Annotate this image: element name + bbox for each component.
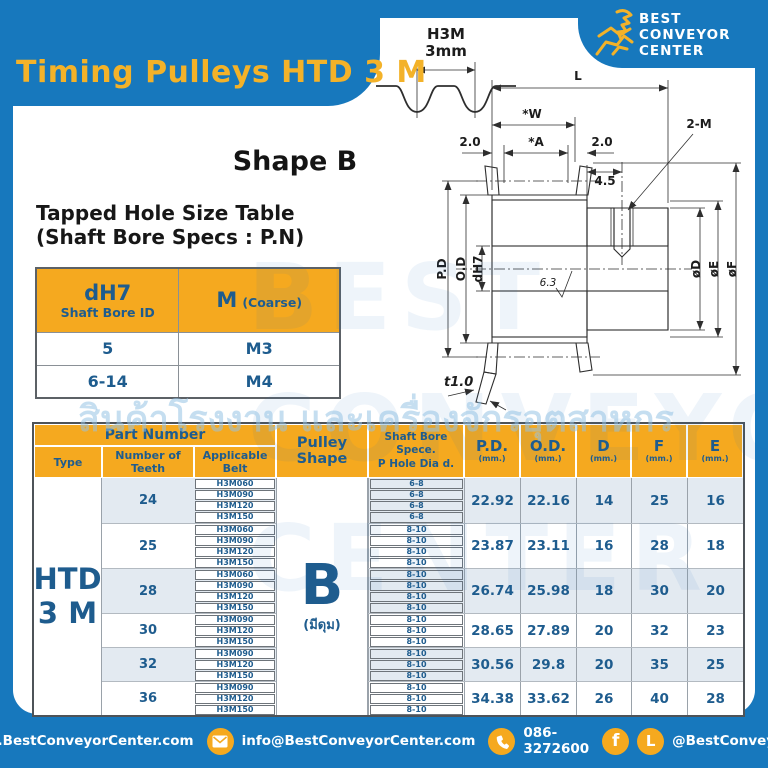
table-group: 6-86-86-86-822.9222.16142516 (368, 478, 743, 523)
tapped-cell: M4 (179, 365, 340, 398)
footer-social[interactable]: f L @BestConveyorCenter (602, 728, 768, 755)
tapped-hole-table: dH7 Shaft Bore ID M (Coarse) 5 M3 6-14 M… (35, 267, 341, 399)
tapped-col-header-bore: dH7 Shaft Bore ID (36, 268, 179, 332)
belt-cell: H3M060 (195, 479, 275, 489)
belt-cell: H3M090 (195, 536, 275, 546)
belt-stack: H3M060H3M090H3M120H3M150 (194, 569, 276, 613)
spec-table-header: Part Number Type Number of Teeth Applica… (34, 424, 743, 478)
teeth-cell: 25 (102, 524, 194, 568)
dim-L: L (574, 69, 582, 83)
teeth-cell: 24 (102, 478, 194, 523)
d-cell: 18 (576, 569, 631, 613)
page-title: Timing Pulleys HTD 3 M (16, 55, 427, 90)
header-teeth: Number of Teeth (102, 446, 194, 478)
bore-cell: 8-10 (370, 592, 463, 602)
table-group: 8-108-108-1030.5629.8203525 (368, 647, 743, 681)
belt-cell: H3M150 (195, 558, 275, 568)
header-od: O.D.(mm.) (520, 424, 576, 478)
brand-logo: BEST CONVEYOR CENTER (578, 0, 768, 68)
dim-t: t1.0 (444, 375, 473, 390)
belt-cell: H3M150 (195, 637, 275, 647)
brand-goat-icon (597, 11, 632, 54)
brand-text-line1: BEST (639, 11, 681, 27)
od-cell: 25.98 (520, 569, 576, 613)
belt-stack: H3M090H3M120H3M150 (194, 614, 276, 647)
pd-cell: 30.56 (464, 648, 520, 681)
footer-website[interactable]: www.BestConveyorCenter.com (0, 728, 194, 755)
tapped-table-heading: Tapped Hole Size Table (Shaft Bore Specs… (36, 201, 304, 249)
header-type: Type (34, 446, 102, 478)
bore-cell: 8-10 (370, 570, 463, 580)
header-d: D(mm.) (576, 424, 631, 478)
dim-tap: 2-M (686, 117, 711, 131)
bore-cell: 8-10 (370, 660, 463, 670)
bore-cell: 6-8 (370, 490, 463, 500)
bore-cell: 6-8 (370, 479, 463, 489)
bore-cell: 6-8 (370, 501, 463, 511)
d-cell: 16 (576, 524, 631, 568)
footer-contact-bar: www.BestConveyorCenter.com info@BestConv… (0, 714, 768, 768)
footer-phone[interactable]: 086-3272600 (488, 725, 589, 757)
flange-top-right (576, 166, 592, 195)
dim-diaD: øD (689, 260, 703, 278)
type-cell: HTD 3 M (34, 478, 102, 715)
od-cell: 22.16 (520, 478, 576, 523)
belt-cell: H3M150 (195, 603, 275, 613)
table-group: 25H3M060H3M090H3M120H3M150 (102, 523, 276, 568)
header-shape: Pulley Shape (276, 424, 368, 478)
brand-text-line3: CENTER (639, 43, 704, 59)
bore-cell: 8-10 (370, 694, 463, 704)
flange-bottom-right (576, 343, 592, 372)
table-group: 8-108-108-108-1026.7425.98183020 (368, 568, 743, 613)
table-group: 24H3M060H3M090H3M120H3M150 (102, 478, 276, 523)
teeth-cell: 30 (102, 614, 194, 647)
e-cell: 16 (687, 478, 743, 523)
e-cell: 18 (687, 524, 743, 568)
table-group: 28H3M060H3M090H3M120H3M150 (102, 568, 276, 613)
bore-cell: 8-10 (370, 603, 463, 613)
tapped-cell: 6-14 (36, 365, 179, 398)
brand-logo-graphic: BEST CONVEYOR CENTER (587, 6, 759, 62)
dim-PD: P.D (435, 258, 449, 279)
f-cell: 35 (631, 648, 687, 681)
bore-cell: 8-10 (370, 637, 463, 647)
table-group: 36H3M090H3M120H3M150 (102, 681, 276, 715)
belt-cell: H3M120 (195, 547, 275, 557)
f-cell: 30 (631, 569, 687, 613)
flange-bottom-left (484, 343, 498, 374)
tapped-cell: M3 (179, 332, 340, 365)
belt-cell: H3M150 (195, 671, 275, 681)
bore-stack: 8-108-108-10 (368, 682, 464, 715)
tapped-heading-line1: Tapped Hole Size Table (36, 201, 304, 225)
dim-W: *W (522, 107, 542, 121)
header-bore: Shaft Bore Spece. P Hole Dia d. (368, 424, 464, 478)
f-cell: 32 (631, 614, 687, 647)
facebook-icon: f (602, 728, 629, 755)
bore-cell: 8-10 (370, 615, 463, 625)
bore-stack: 6-86-86-86-8 (368, 478, 464, 523)
dim-margin-right: 2.0 (591, 135, 612, 149)
f-cell: 40 (631, 682, 687, 715)
pd-cell: 22.92 (464, 478, 520, 523)
footer-email[interactable]: info@BestConveyorCenter.com (207, 728, 476, 755)
line-icon: L (637, 728, 664, 755)
bore-cell: 8-10 (370, 525, 463, 535)
belt-cell: H3M120 (195, 626, 275, 636)
teeth-belt-column: 24H3M060H3M090H3M120H3M15025H3M060H3M090… (102, 478, 276, 715)
roughness-symbol (556, 271, 572, 297)
pd-cell: 23.87 (464, 524, 520, 568)
belt-cell: H3M060 (195, 570, 275, 580)
pd-cell: 26.74 (464, 569, 520, 613)
phone-icon (488, 728, 515, 755)
d-cell: 26 (576, 682, 631, 715)
od-cell: 29.8 (520, 648, 576, 681)
bore-cell: 8-10 (370, 671, 463, 681)
rim-section-bottom (492, 291, 587, 337)
pd-cell: 28.65 (464, 614, 520, 647)
belt-stack: H3M060H3M090H3M120H3M150 (194, 524, 276, 568)
f-cell: 25 (631, 478, 687, 523)
pd-cell: 34.38 (464, 682, 520, 715)
table-group: 30H3M090H3M120H3M150 (102, 613, 276, 647)
belt-cell: H3M090 (195, 683, 275, 693)
datasheet-page: BEST CONVEYOR CENTER สินค้าโรงงาน และเคร… (0, 0, 768, 768)
dim-A: *A (528, 135, 544, 149)
header-pd: P.D.(mm.) (464, 424, 520, 478)
rim-section-top (492, 200, 587, 246)
bore-cell: 8-10 (370, 558, 463, 568)
table-group: 8-108-108-1028.6527.89203223 (368, 613, 743, 647)
dim-diaE: øE (707, 261, 721, 277)
belt-cell: H3M150 (195, 512, 275, 522)
belt-stack: H3M060H3M090H3M120H3M150 (194, 478, 276, 523)
pulley-technical-drawing: L *W *A 2.0 2.0 4.5 P.D O.D dH7 øD øE øF… (400, 50, 753, 418)
shape-cell: B (มีดุม) (276, 478, 368, 715)
belt-cell: H3M120 (195, 592, 275, 602)
belt-cell: H3M090 (195, 490, 275, 500)
d-cell: 20 (576, 648, 631, 681)
table-group: 8-108-108-108-1023.8723.11162818 (368, 523, 743, 568)
dim-margin-left: 2.0 (459, 135, 480, 149)
belt-cell: H3M120 (195, 694, 275, 704)
belt-cell: H3M090 (195, 581, 275, 591)
shape-heading: Shape B (180, 146, 410, 177)
bore-cell: 8-10 (370, 649, 463, 659)
part-number-header-group: Part Number Type Number of Teeth Applica… (34, 424, 276, 478)
mail-icon (207, 728, 234, 755)
bore-stack: 8-108-108-10 (368, 614, 464, 647)
bore-cell: 8-10 (370, 683, 463, 693)
belt-cell: H3M120 (195, 501, 275, 511)
belt-stack: H3M090H3M120H3M150 (194, 682, 276, 715)
bore-cell: 8-10 (370, 547, 463, 557)
spec-table: Part Number Type Number of Teeth Applica… (32, 422, 745, 717)
bore-stack: 8-108-108-108-10 (368, 524, 464, 568)
bore-cell: 8-10 (370, 705, 463, 715)
dim-diaF: øF (725, 261, 739, 277)
teeth-cell: 36 (102, 682, 194, 715)
header-f: F(mm.) (631, 424, 687, 478)
f-cell: 28 (631, 524, 687, 568)
d-cell: 20 (576, 614, 631, 647)
hub-section-bottom (587, 291, 668, 330)
bore-cell: 8-10 (370, 536, 463, 546)
od-cell: 27.89 (520, 614, 576, 647)
profile-name-label: H3M (427, 25, 465, 43)
d-cell: 14 (576, 478, 631, 523)
bore-cell: 8-10 (370, 581, 463, 591)
header-part-number: Part Number (34, 424, 276, 446)
bore-stack: 8-108-108-108-10 (368, 569, 464, 613)
dim-roughness: 6.3 (540, 277, 557, 289)
bore-dims-column: 6-86-86-86-822.9222.161425168-108-108-10… (368, 478, 743, 715)
dim-bore: dH7 (471, 256, 485, 283)
belt-cell: H3M120 (195, 660, 275, 670)
brand-text-line2: CONVEYOR (639, 27, 731, 43)
dim-OD: O.D (454, 257, 468, 281)
header-belt: Applicable Belt (194, 446, 276, 478)
dim-offset: 4.5 (594, 174, 615, 188)
belt-cell: H3M060 (195, 525, 275, 535)
table-group: 32H3M090H3M120H3M150 (102, 647, 276, 681)
belt-cell: H3M090 (195, 615, 275, 625)
e-cell: 23 (687, 614, 743, 647)
e-cell: 20 (687, 569, 743, 613)
teeth-cell: 32 (102, 648, 194, 681)
od-cell: 23.11 (520, 524, 576, 568)
spec-table-body: HTD 3 M 24H3M060H3M090H3M120H3M15025H3M0… (34, 478, 743, 715)
belt-stack: H3M090H3M120H3M150 (194, 648, 276, 681)
tapped-cell: 5 (36, 332, 179, 365)
bore-cell: 8-10 (370, 626, 463, 636)
header-e: E(mm.) (687, 424, 743, 478)
tapped-col-header-thread: M (Coarse) (179, 268, 340, 332)
e-cell: 28 (687, 682, 743, 715)
od-cell: 33.62 (520, 682, 576, 715)
e-cell: 25 (687, 648, 743, 681)
title-banner: Timing Pulleys HTD 3 M (0, 0, 380, 106)
bore-stack: 8-108-108-10 (368, 648, 464, 681)
bore-cell: 6-8 (370, 512, 463, 522)
tapped-heading-line2: (Shaft Bore Specs : P.N) (36, 225, 304, 249)
teeth-cell: 28 (102, 569, 194, 613)
belt-cell: H3M090 (195, 649, 275, 659)
table-group: 8-108-108-1034.3833.62264028 (368, 681, 743, 715)
belt-cell: H3M150 (195, 705, 275, 715)
